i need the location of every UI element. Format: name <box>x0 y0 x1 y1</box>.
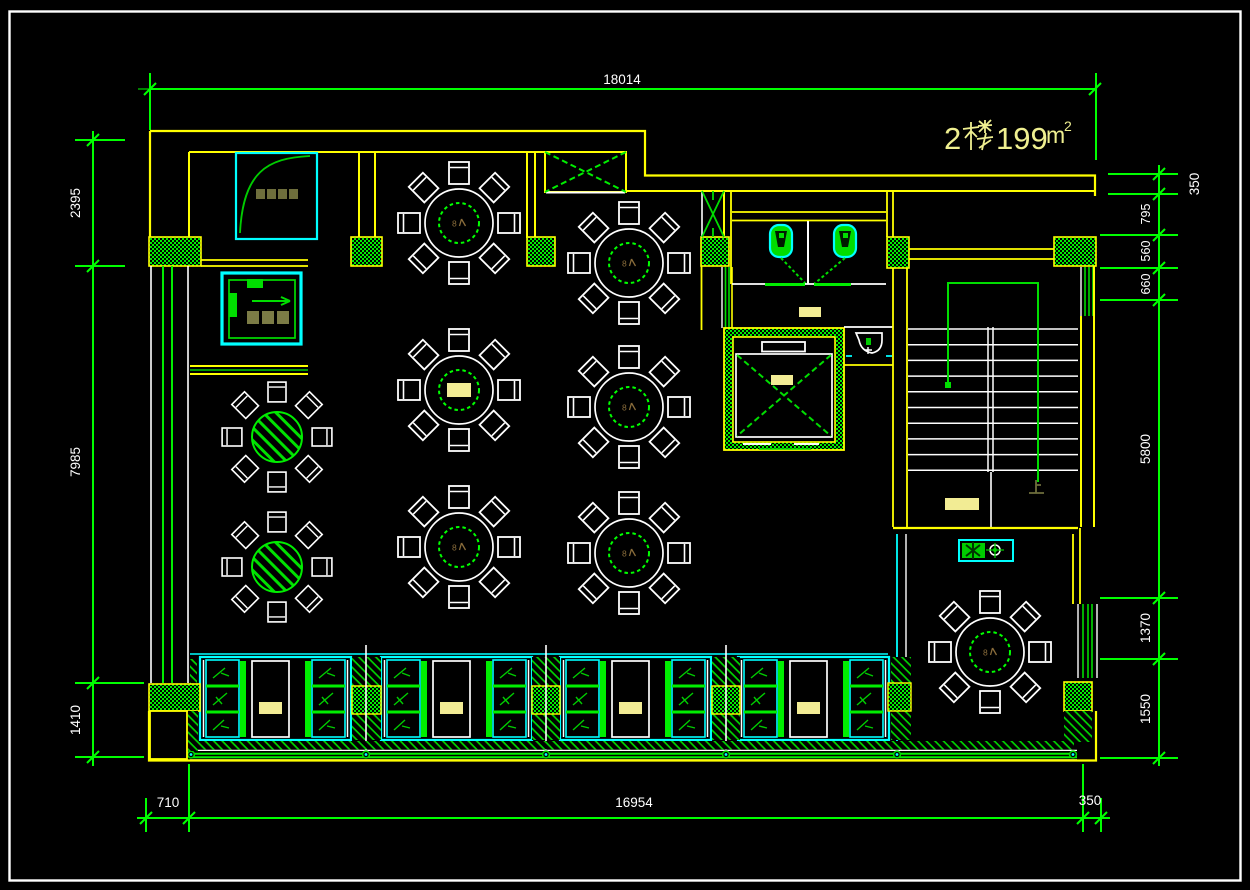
svg-text:710: 710 <box>157 795 180 810</box>
svg-text:1370: 1370 <box>1138 613 1153 643</box>
svg-text:18014: 18014 <box>603 72 641 87</box>
svg-text:1550: 1550 <box>1138 694 1153 724</box>
svg-text:795: 795 <box>1139 204 1153 225</box>
svg-text:660: 660 <box>1139 274 1153 295</box>
svg-text:m: m <box>1046 122 1065 148</box>
svg-text:2395: 2395 <box>68 188 83 218</box>
svg-text:1410: 1410 <box>68 705 83 735</box>
svg-text:2: 2 <box>1064 118 1072 134</box>
svg-text:350: 350 <box>1079 793 1102 808</box>
svg-text:560: 560 <box>1139 241 1153 262</box>
svg-text:16954: 16954 <box>615 795 653 810</box>
svg-text:2: 2 <box>944 121 961 156</box>
svg-text:5800: 5800 <box>1138 434 1153 464</box>
svg-text:199: 199 <box>996 121 1048 156</box>
svg-text:7985: 7985 <box>68 447 83 477</box>
svg-text:350: 350 <box>1187 173 1202 196</box>
